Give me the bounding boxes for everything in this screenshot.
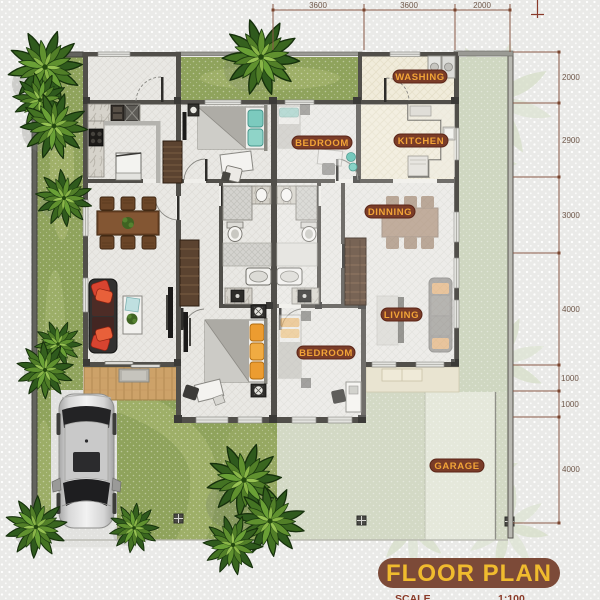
svg-text:FLOOR PLAN: FLOOR PLAN bbox=[386, 560, 552, 587]
svg-text:2900: 2900 bbox=[562, 136, 580, 145]
svg-text:DINNING: DINNING bbox=[368, 207, 412, 218]
svg-text:4000: 4000 bbox=[562, 305, 580, 314]
svg-text:KITCHEN: KITCHEN bbox=[398, 136, 444, 147]
svg-text:BEDROOM: BEDROOM bbox=[295, 138, 349, 149]
svg-text:3600: 3600 bbox=[400, 1, 418, 10]
svg-text:3600: 3600 bbox=[309, 1, 327, 10]
svg-text:GARAGE: GARAGE bbox=[434, 461, 479, 472]
svg-text:3000: 3000 bbox=[562, 211, 580, 220]
svg-text:1:100: 1:100 bbox=[498, 593, 525, 600]
svg-text:1000: 1000 bbox=[561, 400, 579, 409]
svg-text:2000: 2000 bbox=[562, 73, 580, 82]
svg-text:SCALE: SCALE bbox=[395, 593, 431, 600]
svg-text:LIVING: LIVING bbox=[384, 310, 419, 321]
svg-text:4000: 4000 bbox=[562, 465, 580, 474]
svg-text:1000: 1000 bbox=[561, 374, 579, 383]
svg-text:WASHING: WASHING bbox=[395, 72, 445, 83]
svg-text:2000: 2000 bbox=[473, 1, 491, 10]
svg-text:BEDROOM: BEDROOM bbox=[299, 348, 353, 359]
